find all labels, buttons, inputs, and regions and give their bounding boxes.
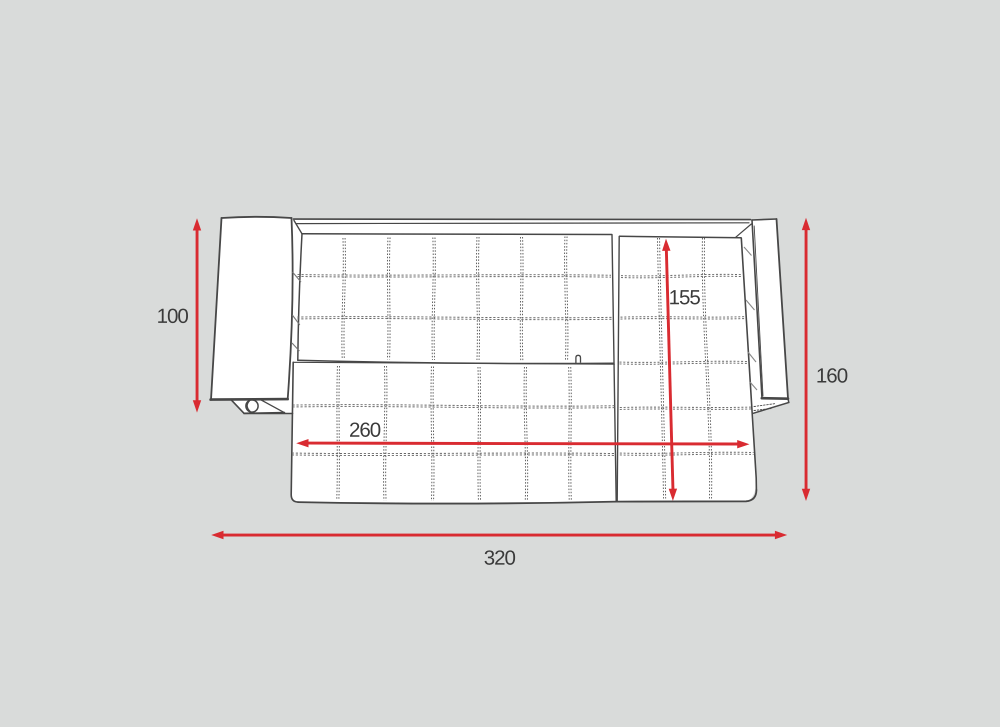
svg-text:160: 160 <box>816 364 848 387</box>
svg-text:320: 320 <box>484 547 516 570</box>
svg-text:260: 260 <box>349 419 381 442</box>
svg-text:155: 155 <box>669 286 701 309</box>
svg-text:100: 100 <box>157 305 189 328</box>
